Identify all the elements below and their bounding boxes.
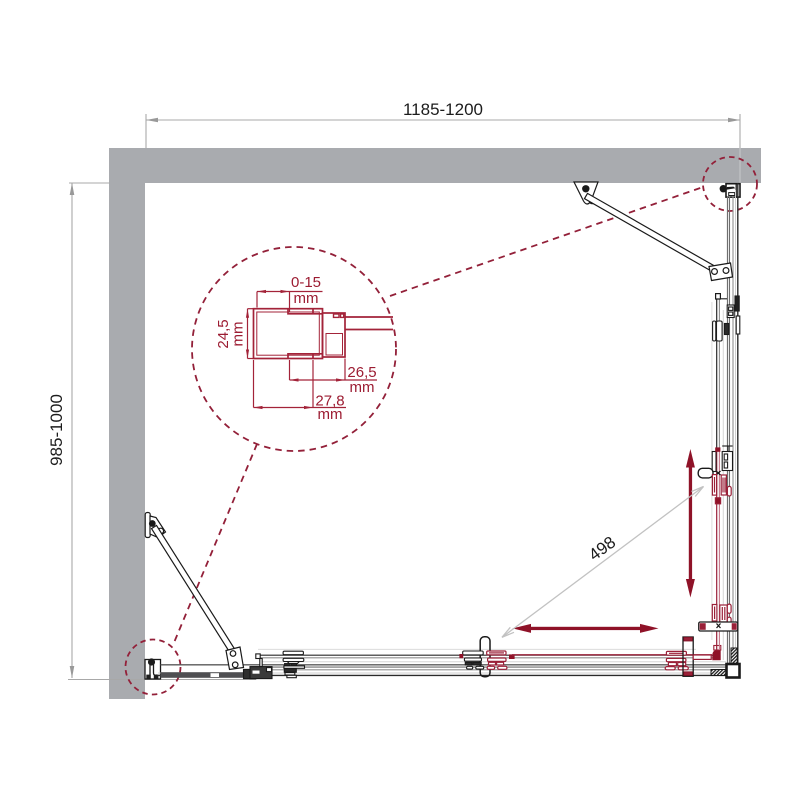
svg-text:mm: mm [230, 322, 247, 347]
svg-text:mm: mm [318, 406, 343, 423]
svg-text:mm: mm [350, 379, 375, 396]
svg-text:1185-1200: 1185-1200 [403, 100, 483, 119]
svg-text:985-1000: 985-1000 [47, 394, 66, 466]
svg-text:0-15: 0-15 [291, 274, 321, 291]
svg-text:mm: mm [294, 290, 319, 307]
